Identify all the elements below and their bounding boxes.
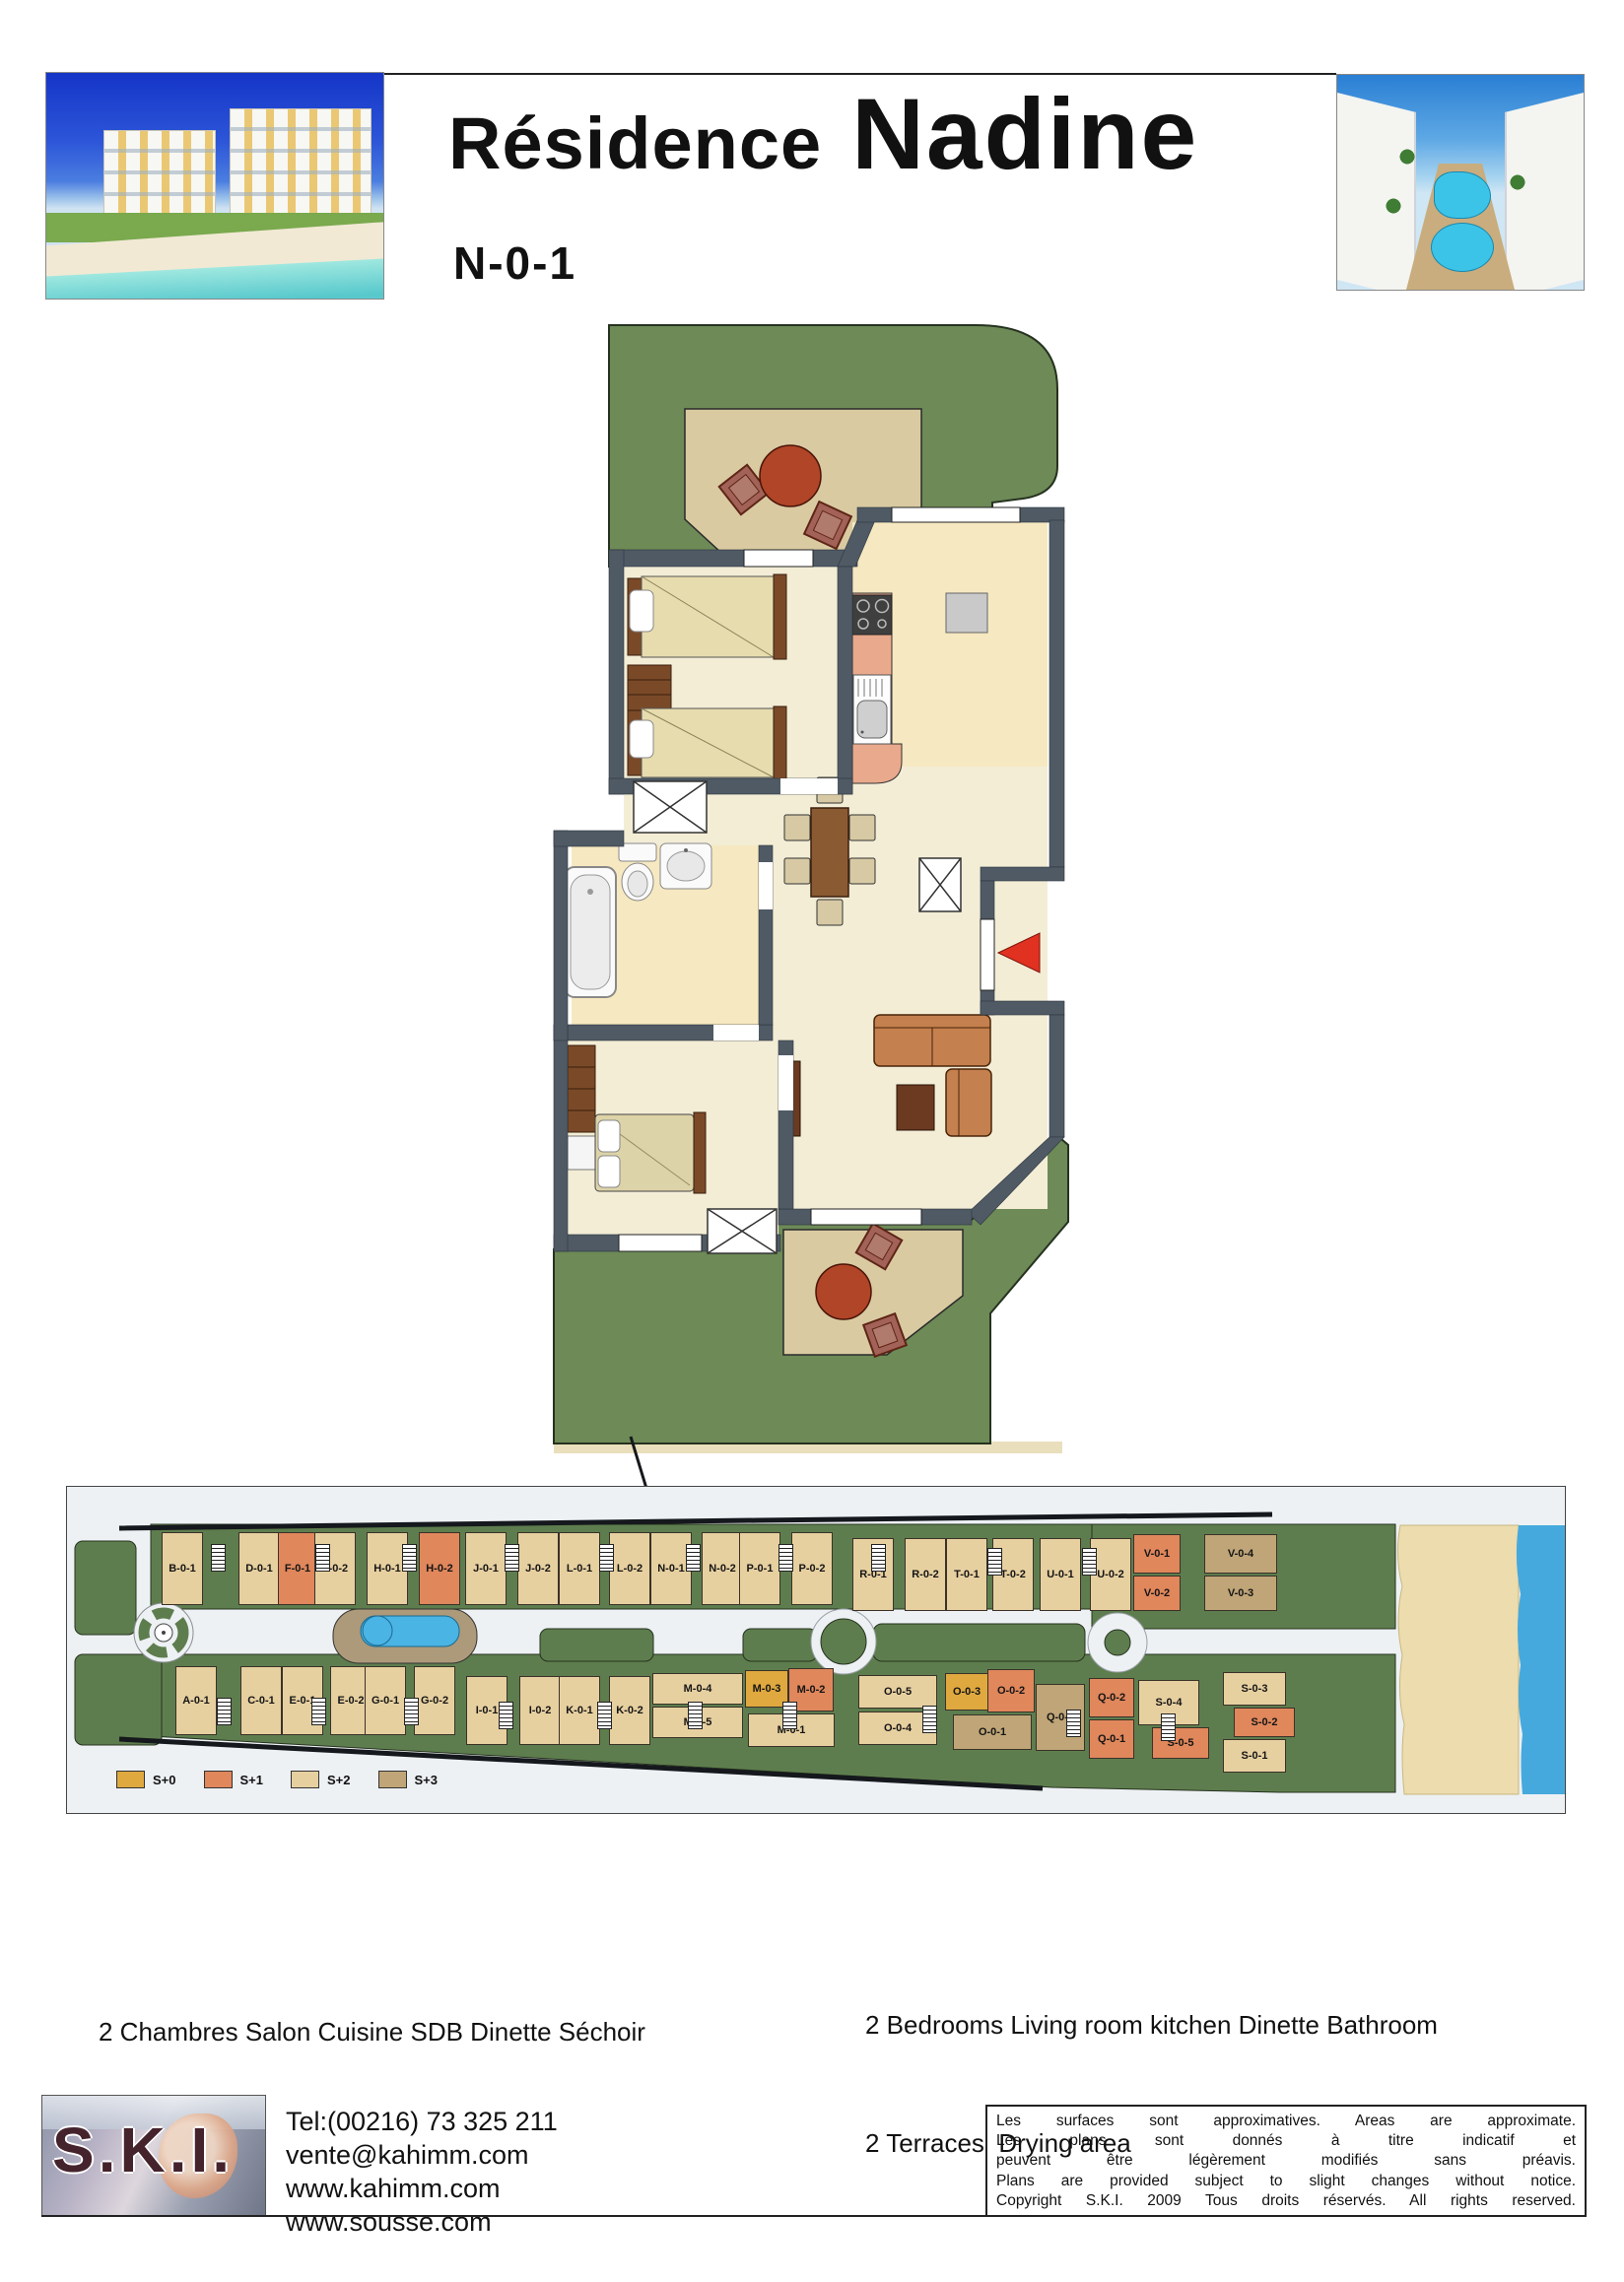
fridge-icon xyxy=(946,593,987,633)
green-blob-left-bottom xyxy=(75,1654,162,1745)
bathtub-icon xyxy=(565,867,616,997)
site-plan-unit-g-0-1: G-0-1 xyxy=(365,1666,406,1735)
contact-block: Tel:(00216) 73 325 211 vente@kahimm.com … xyxy=(286,2105,558,2239)
legend-item-s0: S+0 xyxy=(116,1771,176,1788)
stair-icon xyxy=(686,1544,701,1572)
double-bed-icon xyxy=(595,1112,706,1193)
legend-swatch xyxy=(204,1771,233,1788)
sea xyxy=(1517,1525,1565,1794)
toilet-icon xyxy=(619,843,656,901)
site-plan-unit-r-0-2: R-0-2 xyxy=(905,1538,946,1611)
green-blob-left-top xyxy=(75,1541,136,1635)
stair-icon xyxy=(599,1544,614,1572)
stair-icon xyxy=(688,1702,703,1729)
site-plan-unit-a-0-1: A-0-1 xyxy=(175,1666,217,1735)
site-plan-unit-d-0-1: D-0-1 xyxy=(238,1532,280,1605)
site-plan-unit-c-0-1: C-0-1 xyxy=(240,1666,282,1735)
title-residence: Résidence xyxy=(448,101,822,185)
disclaimer-box: Les surfaces sont approximatives. Areas … xyxy=(985,2105,1587,2217)
site-plan-unit-o-0-5: O-0-5 xyxy=(858,1675,937,1709)
site-plan: B-0-1D-0-1F-0-1F-0-2H-0-1H-0-2J-0-1J-0-2… xyxy=(66,1486,1566,1814)
legend-swatch xyxy=(291,1771,319,1788)
site-plan-legend: S+0S+1S+2S+3 xyxy=(116,1771,438,1788)
site-plan-unit-n-0-2: N-0-2 xyxy=(702,1532,743,1605)
site-plan-unit-v-0-2: V-0-2 xyxy=(1133,1576,1181,1611)
legend-item-s1: S+1 xyxy=(204,1771,264,1788)
legend-swatch xyxy=(378,1771,407,1788)
stair-icon xyxy=(404,1698,419,1725)
stair-icon xyxy=(987,1548,1002,1576)
desc-fr-line1: 2 Chambres Salon Cuisine SDB Dinette Séc… xyxy=(99,2012,645,2051)
disclaimer-line: Copyright S.K.I. 2009 Tous droits réserv… xyxy=(996,2191,1576,2211)
stair-icon xyxy=(311,1698,326,1725)
stove-icon xyxy=(852,595,892,635)
wardrobe-icon xyxy=(568,1045,595,1170)
site-plan-unit-q-0-2: Q-0-2 xyxy=(1089,1678,1134,1717)
contact-web-sousse: www.sousse.com xyxy=(286,2205,558,2239)
site-plan-unit-l-0-1: L-0-1 xyxy=(559,1532,600,1605)
coffee-table-icon xyxy=(897,1085,934,1130)
site-plan-unit-v-0-3: V-0-3 xyxy=(1204,1576,1277,1611)
site-plan-unit-f-0-1: F-0-1 xyxy=(278,1532,317,1605)
site-plan-unit-p-0-2: P-0-2 xyxy=(791,1532,833,1605)
stair-icon xyxy=(402,1544,417,1572)
stair-icon xyxy=(505,1544,519,1572)
site-plan-unit-q-0-1: Q-0-1 xyxy=(1089,1719,1134,1759)
stair-icon xyxy=(871,1544,886,1572)
beach-sand xyxy=(1397,1525,1519,1794)
title-nadine: Nadine xyxy=(851,77,1198,192)
floor-plan xyxy=(532,310,1084,1458)
contact-phone: Tel:(00216) 73 325 211 xyxy=(286,2105,558,2138)
site-plan-unit-u-0-1: U-0-1 xyxy=(1040,1538,1081,1611)
stair-icon xyxy=(1161,1713,1176,1741)
stair-icon xyxy=(922,1706,937,1733)
disclaimer-line: Plans are provided subject to slight cha… xyxy=(996,2172,1576,2191)
median-1 xyxy=(540,1629,653,1661)
site-plan-unit-m-0-4: M-0-4 xyxy=(652,1673,743,1705)
site-plan-unit-o-0-1: O-0-1 xyxy=(953,1714,1032,1750)
site-plan-unit-g-0-2: G-0-2 xyxy=(414,1666,455,1735)
stair-icon xyxy=(1082,1548,1097,1576)
courtyard-pools-photo xyxy=(1336,74,1585,291)
site-plan-unit-h-0-2: H-0-2 xyxy=(419,1532,460,1605)
legend-label: S+1 xyxy=(240,1773,264,1787)
site-plan-unit-t-0-1: T-0-1 xyxy=(946,1538,987,1611)
disclaimer-line: peuvent être légèrement modifiés sans pr… xyxy=(996,2151,1576,2171)
stair-icon xyxy=(211,1544,226,1572)
kitchen-sink-icon xyxy=(853,675,891,744)
site-plan-unit-j-0-1: J-0-1 xyxy=(465,1532,507,1605)
contact-email: vente@kahimm.com xyxy=(286,2138,558,2172)
legend-swatch xyxy=(116,1771,145,1788)
site-plan-unit-p-0-1: P-0-1 xyxy=(739,1532,780,1605)
desc-en-line1: 2 Bedrooms Living room kitchen Dinette B… xyxy=(865,2005,1438,2045)
legend-item-s3: S+3 xyxy=(378,1771,439,1788)
site-plan-unit-b-0-1: B-0-1 xyxy=(162,1532,203,1605)
stair-icon xyxy=(315,1544,330,1572)
legend-label: S+2 xyxy=(327,1773,351,1787)
legend-label: S+0 xyxy=(153,1773,176,1787)
site-plan-unit-v-0-4: V-0-4 xyxy=(1204,1534,1277,1574)
site-plan-unit-k-0-2: K-0-2 xyxy=(609,1676,650,1745)
ski-logo-text: S.K.I. xyxy=(52,2114,234,2186)
legend-item-s2: S+2 xyxy=(291,1771,351,1788)
site-plan-unit-s-0-3: S-0-3 xyxy=(1223,1672,1286,1706)
ski-logo: S.K.I. xyxy=(41,2095,266,2217)
disclaimer-line: Les surfaces sont approximatives. Areas … xyxy=(996,2112,1576,2131)
site-plan-unit-k-0-1: K-0-1 xyxy=(559,1676,600,1745)
site-plan-unit-o-0-2: O-0-2 xyxy=(987,1669,1035,1712)
legend-label: S+3 xyxy=(415,1773,439,1787)
brochure-page: Résidence Nadine N-0-1 xyxy=(0,0,1624,2282)
round-pool xyxy=(363,1616,392,1645)
site-plan-unit-l-0-2: L-0-2 xyxy=(609,1532,650,1605)
site-plan-unit-s-0-2: S-0-2 xyxy=(1234,1708,1295,1737)
stair-icon xyxy=(782,1702,797,1729)
contact-web-kahimm: www.kahimm.com xyxy=(286,2172,558,2205)
entrance-door xyxy=(981,919,994,990)
site-plan-unit-i-0-2: I-0-2 xyxy=(519,1676,561,1745)
site-plan-unit-v-0-1: V-0-1 xyxy=(1133,1534,1181,1574)
washbasin-icon xyxy=(660,843,711,889)
site-plan-unit-o-0-3: O-0-3 xyxy=(945,1673,988,1711)
stair-icon xyxy=(1066,1710,1081,1737)
site-plan-unit-j-0-2: J-0-2 xyxy=(517,1532,559,1605)
page-title: Résidence Nadine xyxy=(448,77,1198,192)
median-2 xyxy=(743,1629,817,1661)
header-divider xyxy=(382,73,1336,75)
beachfront-building-photo xyxy=(45,72,384,300)
stair-icon xyxy=(778,1544,793,1572)
disclaimer-line: Les plans sont donnés à titre indicatif … xyxy=(996,2131,1576,2151)
median-3 xyxy=(873,1624,1085,1661)
stair-icon xyxy=(217,1698,232,1725)
stair-icon xyxy=(597,1702,612,1729)
unit-code-label: N-0-1 xyxy=(453,236,576,290)
stair-icon xyxy=(499,1702,513,1729)
site-plan-unit-s-0-1: S-0-1 xyxy=(1223,1739,1286,1773)
